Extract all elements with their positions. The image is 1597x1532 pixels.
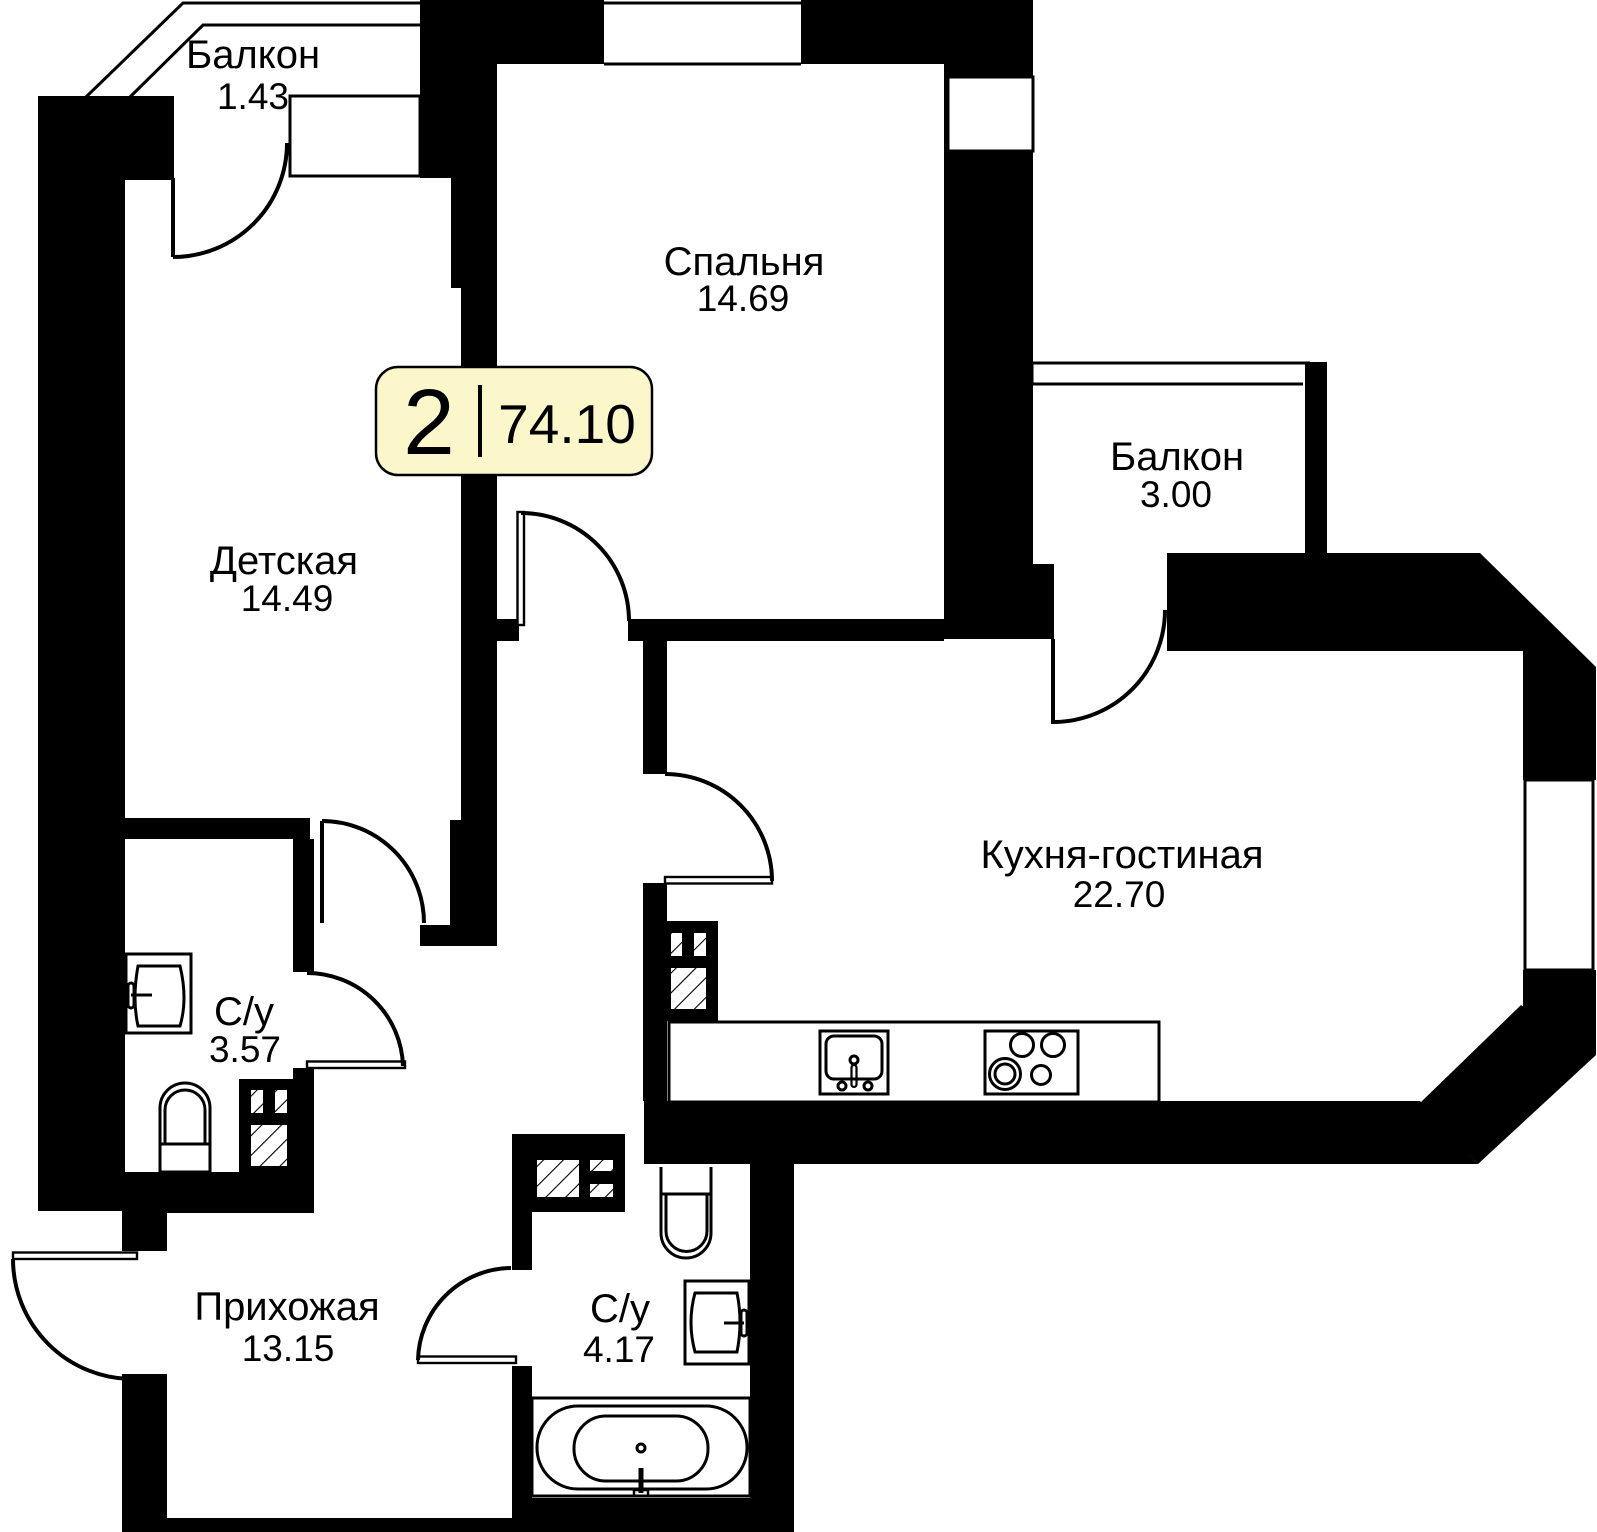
svg-text:Прихожая: Прихожая bbox=[194, 1285, 379, 1329]
svg-text:Кухня-гостиная: Кухня-гостиная bbox=[981, 833, 1264, 877]
svg-text:14.49: 14.49 bbox=[241, 578, 334, 619]
svg-text:3.57: 3.57 bbox=[209, 1029, 281, 1070]
svg-text:Детская: Детская bbox=[210, 539, 358, 583]
svg-text:74.10: 74.10 bbox=[498, 393, 636, 455]
svg-text:13.15: 13.15 bbox=[242, 1328, 335, 1369]
svg-text:С/у: С/у bbox=[214, 990, 274, 1034]
svg-text:С/у: С/у bbox=[590, 1287, 650, 1331]
svg-text:2: 2 bbox=[403, 370, 455, 474]
svg-text:4.17: 4.17 bbox=[583, 1329, 655, 1370]
svg-text:Балкон: Балкон bbox=[186, 33, 320, 77]
svg-text:14.69: 14.69 bbox=[697, 278, 790, 319]
svg-text:22.70: 22.70 bbox=[1073, 874, 1166, 915]
svg-text:Балкон: Балкон bbox=[1110, 435, 1244, 479]
svg-text:3.00: 3.00 bbox=[1140, 474, 1212, 515]
svg-text:1.43: 1.43 bbox=[217, 76, 289, 117]
